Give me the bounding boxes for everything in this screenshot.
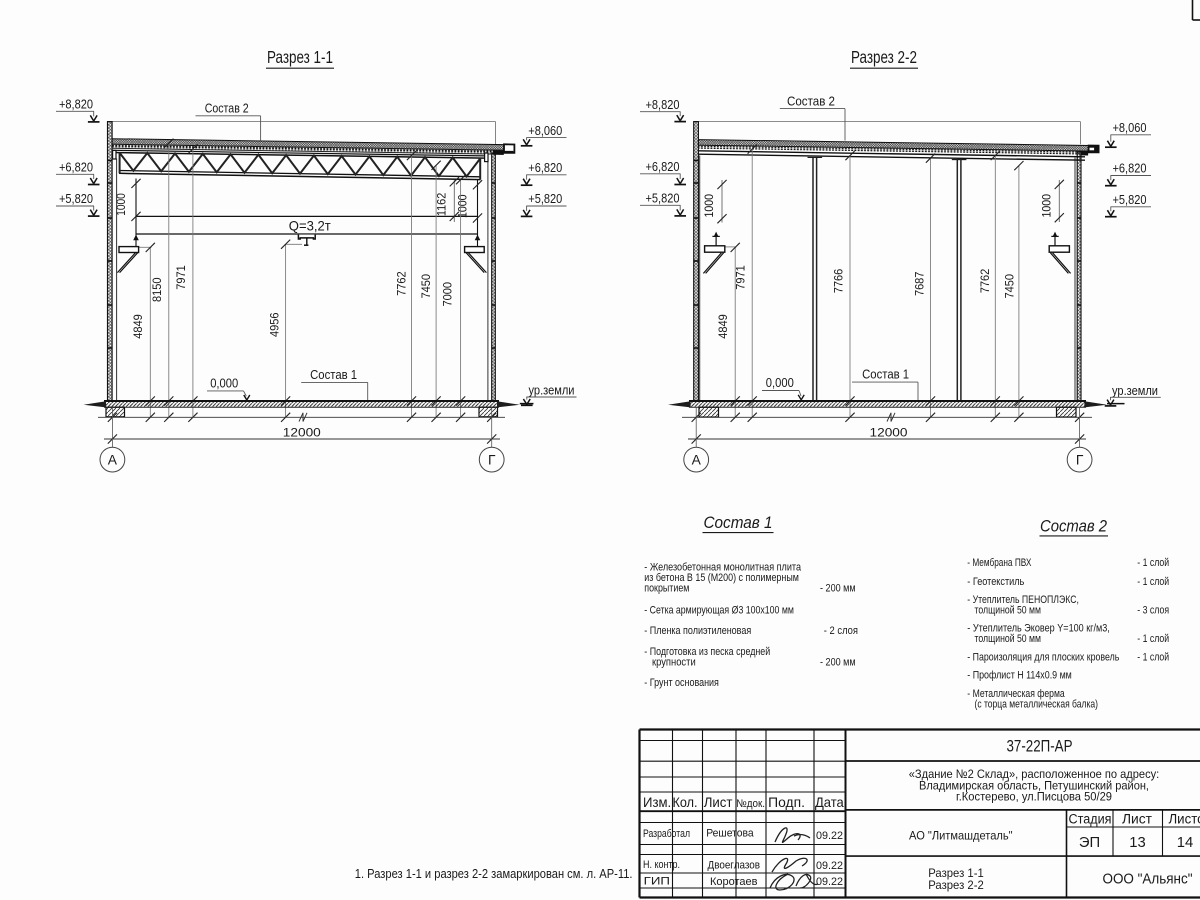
svg-text:Г: Г bbox=[488, 453, 496, 468]
svg-text:- 1 слой: - 1 слой bbox=[1137, 633, 1169, 645]
svg-text:7000: 7000 bbox=[441, 282, 455, 307]
svg-text:1000: 1000 bbox=[1039, 194, 1053, 218]
svg-text:- 1 слой: - 1 слой bbox=[1137, 557, 1169, 569]
svg-text:7450: 7450 bbox=[419, 274, 433, 299]
svg-text:4849: 4849 bbox=[716, 314, 730, 339]
svg-text:09.22: 09.22 bbox=[816, 876, 843, 888]
svg-text:ЭП: ЭП bbox=[1079, 835, 1100, 851]
svg-text:- Пароизоляция для плоских кро: - Пароизоляция для плоских кровель bbox=[967, 651, 1119, 663]
svg-text:Q=3,2т: Q=3,2т bbox=[289, 218, 332, 233]
svg-text:Состав 1: Состав 1 bbox=[862, 366, 909, 381]
svg-text:0,000: 0,000 bbox=[766, 375, 794, 390]
svg-text:ур.земли: ур.земли bbox=[1112, 384, 1158, 398]
svg-text:+6,820: +6,820 bbox=[1113, 162, 1147, 176]
svg-text:1. Разрез 1-1 и разрез 2-2 зам: 1. Разрез 1-1 и разрез 2-2 замаркирован … bbox=[355, 867, 633, 881]
svg-text:+5,820: +5,820 bbox=[528, 192, 562, 206]
svg-text:Дата: Дата bbox=[815, 795, 844, 810]
svg-text:Изм.: Изм. bbox=[643, 795, 671, 810]
svg-text:Листов: Листов bbox=[1169, 812, 1200, 827]
svg-text:Решетова: Решетова bbox=[706, 828, 754, 840]
svg-text:- 200 мм: - 200 мм bbox=[820, 657, 856, 669]
svg-text:АО "Литмашдеталь": АО "Литмашдеталь" bbox=[909, 829, 1013, 843]
svg-text:ООО "Альянс": ООО "Альянс" bbox=[1103, 870, 1193, 887]
svg-text:7762: 7762 bbox=[978, 269, 992, 294]
svg-text:Подп.: Подп. bbox=[768, 795, 805, 810]
svg-text:+6,820: +6,820 bbox=[528, 161, 562, 175]
svg-text:7766: 7766 bbox=[832, 269, 846, 294]
svg-text:7762: 7762 bbox=[395, 271, 409, 296]
svg-text:Разработал: Разработал bbox=[643, 828, 690, 840]
svg-text:- 1 слой: - 1 слой bbox=[1137, 576, 1169, 588]
svg-text:- Сетка армирующая Ø3 100х100: - Сетка армирующая Ø3 100х100 мм bbox=[644, 605, 794, 617]
svg-text:Разрез 2-2: Разрез 2-2 bbox=[851, 47, 917, 67]
svg-text:толщиной 50 мм: толщиной 50 мм bbox=[975, 633, 1042, 645]
svg-text:№док.: №док. bbox=[736, 798, 765, 810]
svg-text:- 2 слоя: - 2 слоя bbox=[824, 625, 858, 637]
svg-text:толщиной 50 мм: толщиной 50 мм bbox=[975, 605, 1042, 617]
svg-text:1000: 1000 bbox=[114, 193, 128, 216]
svg-text:+5,820: +5,820 bbox=[646, 192, 680, 206]
svg-text:Лист: Лист bbox=[704, 795, 733, 810]
svg-text:+8,060: +8,060 bbox=[1113, 121, 1147, 135]
svg-text:(с торца металлическая балка): (с торца металлическая балка) bbox=[975, 699, 1099, 711]
svg-text:- 1 слой: - 1 слой bbox=[1137, 651, 1169, 663]
svg-text:+8,060: +8,060 bbox=[528, 124, 562, 138]
svg-text:14: 14 bbox=[1177, 835, 1193, 851]
svg-text:ГИП: ГИП bbox=[644, 875, 670, 887]
svg-text:+8,820: +8,820 bbox=[646, 98, 680, 112]
svg-text:г.Костерево, ул.Писцова 50/29: г.Костерево, ул.Писцова 50/29 bbox=[956, 789, 1112, 803]
svg-text:7971: 7971 bbox=[174, 265, 188, 290]
svg-text:13: 13 bbox=[1129, 835, 1145, 851]
svg-text:+6,820: +6,820 bbox=[59, 161, 93, 175]
svg-text:12000: 12000 bbox=[870, 426, 908, 440]
svg-text:- Мембрана ПВХ: - Мембрана ПВХ bbox=[967, 557, 1031, 569]
svg-text:ур.земли: ур.земли bbox=[529, 384, 575, 398]
svg-text:7687: 7687 bbox=[912, 271, 926, 296]
svg-text:1162: 1162 bbox=[435, 192, 449, 216]
svg-text:09.22: 09.22 bbox=[816, 830, 843, 842]
svg-text:Состав 2: Состав 2 bbox=[787, 94, 835, 109]
svg-text:1000: 1000 bbox=[702, 194, 716, 218]
svg-text:- Профлист Н 114х0.9 мм: - Профлист Н 114х0.9 мм bbox=[967, 669, 1072, 681]
svg-text:- Грунт основания: - Грунт основания bbox=[644, 677, 719, 689]
svg-text:покрытием: покрытием bbox=[644, 583, 689, 595]
svg-text:+8,820: +8,820 bbox=[59, 98, 93, 112]
svg-text:4956: 4956 bbox=[267, 312, 281, 337]
svg-text:Лист: Лист bbox=[1122, 812, 1152, 827]
svg-text:1000: 1000 bbox=[456, 194, 470, 218]
svg-text:0,000: 0,000 bbox=[210, 376, 238, 391]
svg-text:- Пленка полиэтиленовая: - Пленка полиэтиленовая bbox=[644, 625, 751, 637]
svg-text:7450: 7450 bbox=[1002, 274, 1016, 299]
svg-text:Состав 2: Состав 2 bbox=[1040, 516, 1108, 535]
svg-text:Состав 1: Состав 1 bbox=[704, 513, 773, 532]
svg-text:Г: Г bbox=[1076, 453, 1084, 468]
svg-text:7971: 7971 bbox=[734, 265, 748, 290]
svg-text:Разрез 1-1: Разрез 1-1 bbox=[267, 47, 333, 67]
svg-text:Состав 2: Состав 2 bbox=[205, 101, 249, 116]
svg-text:Н. контр.: Н. контр. bbox=[643, 859, 680, 871]
svg-text:Коротаев: Коротаев bbox=[710, 876, 758, 888]
svg-text:+5,820: +5,820 bbox=[1113, 193, 1147, 207]
svg-text:+5,820: +5,820 bbox=[59, 192, 93, 206]
svg-text:Состав 1: Состав 1 bbox=[310, 367, 357, 382]
svg-text:Разрез 2-2: Разрез 2-2 bbox=[928, 878, 984, 892]
svg-text:А: А bbox=[692, 453, 702, 468]
svg-text:4849: 4849 bbox=[131, 314, 145, 339]
svg-text:8150: 8150 bbox=[150, 277, 164, 302]
svg-text:крупности: крупности bbox=[652, 657, 696, 669]
svg-text:- 200 мм: - 200 мм bbox=[820, 583, 856, 595]
svg-text:- 3 слоя: - 3 слоя bbox=[1137, 605, 1169, 617]
svg-text:Стадия: Стадия bbox=[1069, 812, 1112, 827]
svg-text:- Геотекстиль: - Геотекстиль bbox=[967, 576, 1024, 588]
svg-text:А: А bbox=[108, 453, 118, 468]
svg-text:09.22: 09.22 bbox=[816, 860, 843, 872]
svg-text:Двоеглазов: Двоеглазов bbox=[708, 860, 761, 872]
svg-text:12000: 12000 bbox=[283, 426, 321, 440]
svg-text:Кол.: Кол. bbox=[673, 795, 698, 810]
svg-text:+6,820: +6,820 bbox=[646, 160, 680, 174]
svg-text:37-22П-АР: 37-22П-АР bbox=[1007, 738, 1073, 756]
